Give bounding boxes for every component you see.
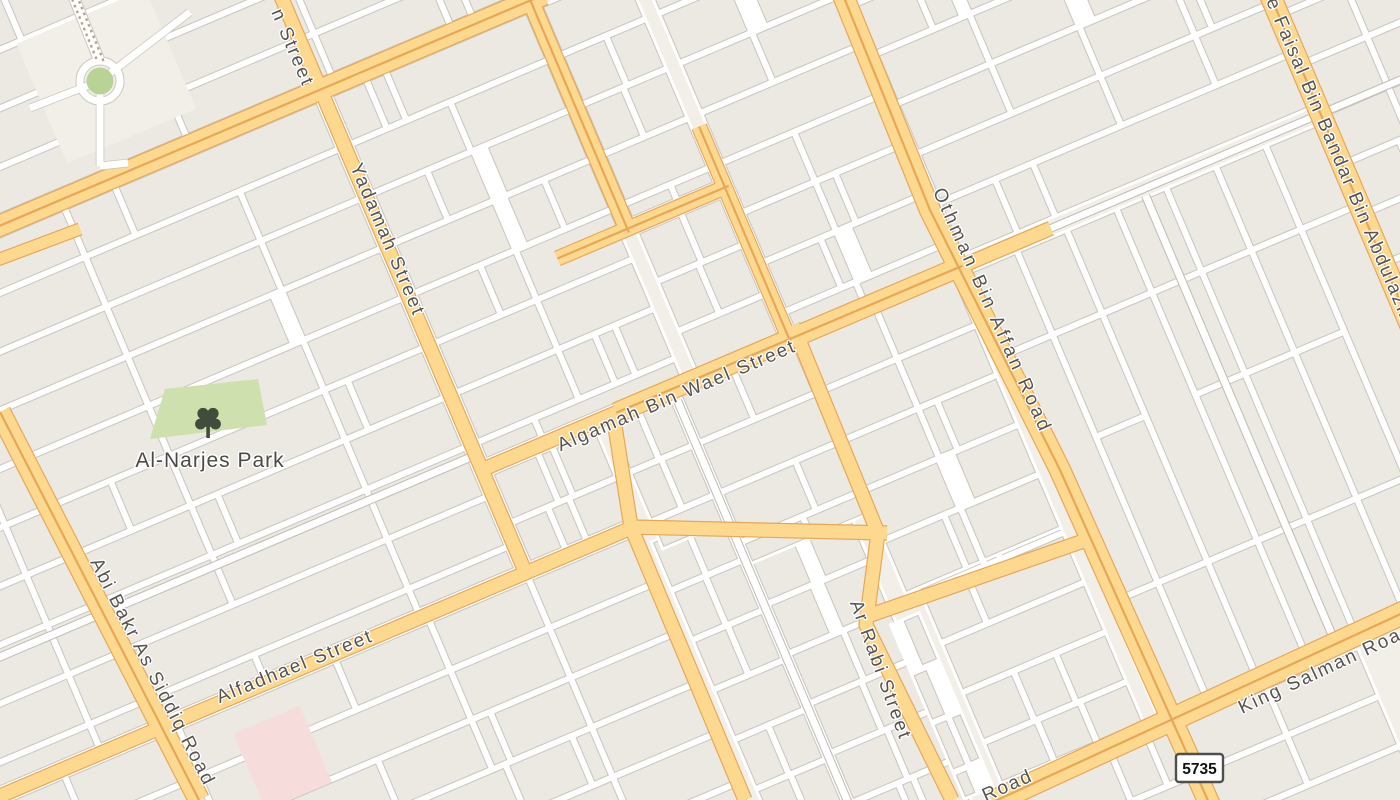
svg-text:5735: 5735 <box>1182 761 1217 778</box>
svg-text:Al-Narjes Park: Al-Narjes Park <box>135 449 284 472</box>
